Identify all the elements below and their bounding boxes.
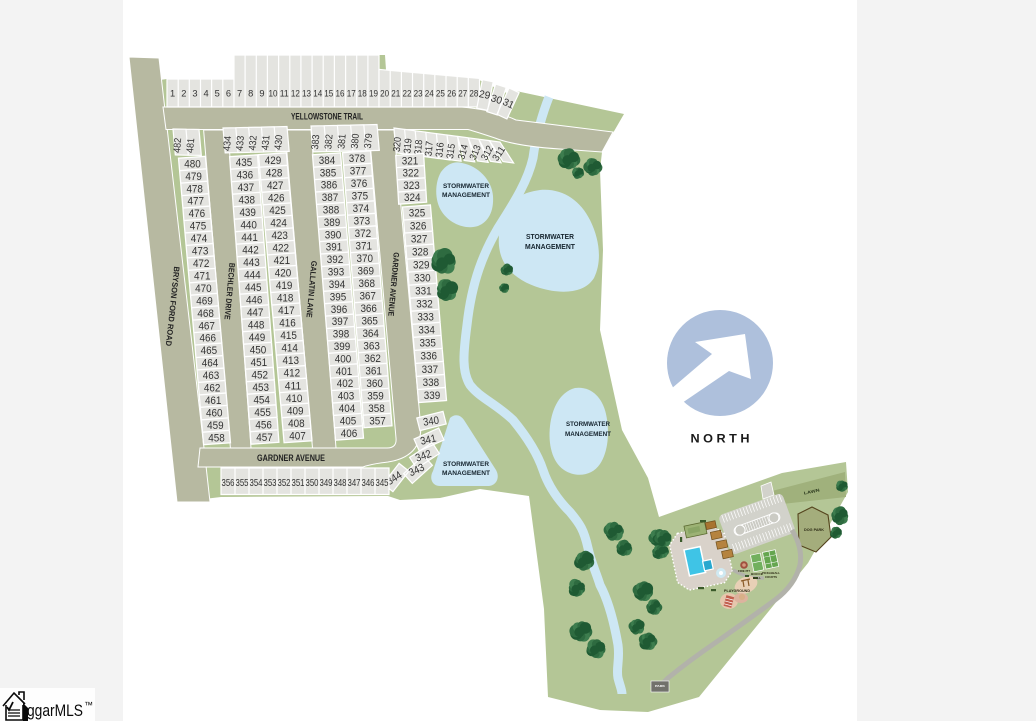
svg-text:366: 366 [360,303,377,315]
svg-text:451: 451 [251,357,268,369]
svg-text:374: 374 [353,203,370,215]
svg-text:474: 474 [191,233,208,245]
svg-text:463: 463 [203,370,220,382]
svg-text:384: 384 [319,155,336,167]
svg-text:9: 9 [259,88,264,98]
svg-text:444: 444 [244,269,261,281]
svg-text:13: 13 [302,88,311,98]
svg-text:3: 3 [192,88,197,98]
svg-text:424: 424 [270,218,287,230]
svg-text:398: 398 [333,329,350,341]
svg-text:352: 352 [278,478,291,489]
svg-text:448: 448 [248,319,265,331]
svg-text:475: 475 [190,221,207,233]
svg-text:439: 439 [239,207,256,219]
svg-text:14: 14 [313,88,322,98]
svg-text:438: 438 [239,194,256,206]
svg-text:370: 370 [357,253,374,265]
svg-text:409: 409 [287,405,304,417]
svg-text:405: 405 [340,415,357,427]
svg-text:349: 349 [320,478,333,489]
svg-text:20: 20 [380,88,389,98]
svg-text:16: 16 [336,88,345,98]
svg-text:PLAYGROUND: PLAYGROUND [724,589,750,593]
svg-text:465: 465 [201,345,218,357]
svg-text:368: 368 [359,278,376,290]
svg-text:480: 480 [184,158,201,170]
svg-text:4: 4 [204,88,209,98]
svg-text:378: 378 [349,153,366,165]
svg-text:449: 449 [249,332,266,344]
svg-text:335: 335 [419,338,436,350]
svg-text:441: 441 [241,232,258,244]
svg-text:340: 340 [422,415,440,429]
svg-text:389: 389 [324,217,341,229]
svg-text:433: 433 [235,135,247,151]
svg-text:358: 358 [368,403,385,415]
svg-text:377: 377 [350,165,367,177]
svg-text:6: 6 [226,88,231,98]
svg-text:334: 334 [418,325,435,337]
svg-text:406: 406 [341,428,358,440]
svg-text:322: 322 [403,168,420,180]
svg-text:437: 437 [238,182,255,194]
svg-text:337: 337 [422,364,439,376]
svg-text:367: 367 [359,290,376,302]
svg-text:345: 345 [376,478,389,489]
svg-text:429: 429 [265,155,282,167]
svg-text:371: 371 [356,240,373,252]
svg-text:362: 362 [364,353,381,365]
svg-text:395: 395 [330,291,347,303]
svg-text:347: 347 [348,478,361,489]
svg-text:467: 467 [198,320,215,332]
svg-text:STORMWATER: STORMWATER [526,234,574,241]
svg-text:393: 393 [328,267,345,279]
svg-text:391: 391 [326,242,343,254]
svg-text:478: 478 [186,183,203,195]
svg-text:FIRE PIT: FIRE PIT [738,569,750,573]
svg-text:420: 420 [275,268,292,280]
svg-text:376: 376 [351,178,368,190]
svg-text:388: 388 [323,205,340,217]
svg-text:387: 387 [322,192,339,204]
svg-text:385: 385 [320,167,337,179]
svg-text:COURTS: COURTS [765,575,777,579]
svg-text:481: 481 [185,137,197,153]
svg-text:473: 473 [192,246,209,258]
svg-text:ggarMLS: ggarMLS [27,701,83,720]
svg-text:397: 397 [332,316,349,328]
svg-text:462: 462 [204,383,221,395]
svg-text:425: 425 [269,205,286,217]
svg-text:419: 419 [276,280,293,292]
svg-text:GARDNER AVENUE: GARDNER AVENUE [257,453,325,463]
svg-text:479: 479 [185,171,202,183]
svg-text:404: 404 [339,403,356,415]
svg-text:380: 380 [350,133,362,149]
svg-text:472: 472 [193,258,210,270]
svg-text:375: 375 [352,190,369,202]
svg-text:466: 466 [200,333,217,345]
svg-text:350: 350 [306,478,319,489]
svg-text:430: 430 [273,134,285,150]
svg-text:19: 19 [369,88,378,98]
svg-text:432: 432 [247,135,259,151]
svg-text:22: 22 [403,88,412,98]
svg-text:426: 426 [268,192,285,204]
svg-text:402: 402 [337,378,354,390]
svg-text:417: 417 [278,305,295,317]
svg-text:468: 468 [197,308,214,320]
svg-text:332: 332 [416,299,433,311]
svg-text:STORMWATER: STORMWATER [443,461,489,468]
svg-text:325: 325 [409,207,426,219]
svg-text:411: 411 [285,380,302,392]
svg-text:446: 446 [246,294,263,306]
svg-text:8: 8 [248,88,253,98]
svg-text:359: 359 [367,390,384,402]
svg-text:457: 457 [256,432,273,444]
svg-text:416: 416 [279,318,296,330]
svg-text:412: 412 [284,368,301,380]
svg-text:461: 461 [205,395,222,407]
svg-text:458: 458 [208,432,225,444]
svg-text:392: 392 [327,254,344,266]
svg-text:459: 459 [207,420,224,432]
svg-text:399: 399 [334,341,351,353]
svg-text:434: 434 [222,135,234,151]
svg-text:390: 390 [325,229,342,241]
svg-text:BALL: BALL [753,576,761,580]
svg-text:373: 373 [354,215,371,227]
svg-text:1: 1 [170,88,175,98]
svg-text:26: 26 [447,88,456,98]
svg-text:348: 348 [334,478,347,489]
svg-text:330: 330 [414,273,431,285]
svg-text:™: ™ [84,700,93,710]
svg-text:23: 23 [414,88,423,98]
svg-text:10: 10 [269,88,278,98]
svg-text:410: 410 [286,393,303,405]
svg-text:21: 21 [391,88,400,98]
svg-text:455: 455 [254,407,271,419]
svg-text:17: 17 [347,88,356,98]
svg-text:STORMWATER: STORMWATER [443,183,489,190]
svg-text:326: 326 [410,220,427,232]
svg-text:361: 361 [365,365,382,377]
svg-text:386: 386 [321,180,338,192]
svg-text:407: 407 [289,430,306,442]
svg-text:471: 471 [194,270,211,282]
svg-text:408: 408 [288,418,305,430]
svg-text:STORMWATER: STORMWATER [566,421,610,428]
svg-text:5: 5 [215,88,220,98]
svg-text:422: 422 [273,243,290,255]
svg-text:453: 453 [253,382,270,394]
svg-text:333: 333 [417,312,434,324]
svg-text:469: 469 [196,295,213,307]
svg-text:27: 27 [458,88,467,98]
svg-text:339: 339 [424,390,441,402]
svg-text:24: 24 [425,88,434,98]
svg-text:436: 436 [237,169,254,181]
svg-text:369: 369 [358,265,375,277]
svg-text:336: 336 [421,351,438,363]
svg-text:331: 331 [415,286,432,298]
svg-text:476: 476 [189,208,206,220]
svg-text:428: 428 [266,167,283,179]
svg-text:396: 396 [331,304,348,316]
svg-text:401: 401 [336,366,353,378]
svg-text:427: 427 [267,180,284,192]
svg-text:363: 363 [363,340,380,352]
svg-text:443: 443 [243,257,260,269]
svg-text:394: 394 [329,279,346,291]
svg-text:372: 372 [355,228,372,240]
svg-text:MANAGEMENT: MANAGEMENT [565,431,611,438]
svg-text:327: 327 [411,233,428,245]
svg-text:440: 440 [240,219,257,231]
svg-text:321: 321 [402,155,419,167]
svg-text:382: 382 [323,133,335,149]
svg-text:454: 454 [253,394,270,406]
svg-text:379: 379 [363,133,375,149]
svg-text:346: 346 [362,478,375,489]
svg-text:PARK: PARK [655,684,666,688]
svg-text:447: 447 [247,307,264,319]
svg-text:445: 445 [245,282,262,294]
svg-text:423: 423 [271,230,288,242]
svg-text:MANAGEMENT: MANAGEMENT [442,192,490,199]
svg-text:MANAGEMENT: MANAGEMENT [442,470,490,477]
svg-text:400: 400 [335,353,352,365]
svg-text:329: 329 [413,260,430,272]
svg-text:415: 415 [280,330,297,342]
svg-text:482: 482 [172,137,184,153]
svg-text:418: 418 [277,293,294,305]
svg-text:328: 328 [412,247,429,259]
svg-text:353: 353 [264,478,277,489]
svg-text:464: 464 [202,358,219,370]
svg-text:357: 357 [369,415,386,427]
svg-text:403: 403 [338,391,355,403]
svg-text:477: 477 [188,196,205,208]
svg-text:323: 323 [403,180,420,192]
svg-text:351: 351 [292,478,305,489]
svg-text:7: 7 [237,88,242,98]
svg-text:355: 355 [236,478,249,489]
svg-text:452: 452 [252,369,269,381]
svg-text:N O R T H: N O R T H [691,434,750,446]
svg-text:431: 431 [260,134,272,150]
svg-text:DOG PARK: DOG PARK [804,528,824,532]
svg-text:450: 450 [250,344,267,356]
svg-text:354: 354 [250,478,263,489]
svg-text:324: 324 [404,192,421,204]
svg-text:442: 442 [242,244,259,256]
svg-text:11: 11 [280,88,289,98]
svg-text:25: 25 [436,88,445,98]
svg-text:12: 12 [291,88,300,98]
svg-text:414: 414 [281,343,298,355]
svg-text:435: 435 [236,157,253,169]
svg-text:421: 421 [274,255,291,267]
svg-text:456: 456 [255,419,272,431]
svg-text:MANAGEMENT: MANAGEMENT [525,244,576,251]
svg-text:413: 413 [283,355,300,367]
svg-text:470: 470 [195,283,212,295]
svg-text:18: 18 [358,88,367,98]
svg-text:338: 338 [423,377,440,389]
svg-text:2: 2 [181,88,186,98]
svg-text:28: 28 [469,88,478,98]
svg-text:360: 360 [366,378,383,390]
svg-text:460: 460 [206,407,223,419]
svg-text:364: 364 [362,328,379,340]
svg-text:15: 15 [324,88,333,98]
svg-text:383: 383 [310,134,322,150]
svg-text:365: 365 [361,315,378,327]
svg-text:381: 381 [336,133,348,149]
svg-text:YELLOWSTONE TRAIL: YELLOWSTONE TRAIL [291,112,363,122]
svg-text:356: 356 [222,478,235,489]
